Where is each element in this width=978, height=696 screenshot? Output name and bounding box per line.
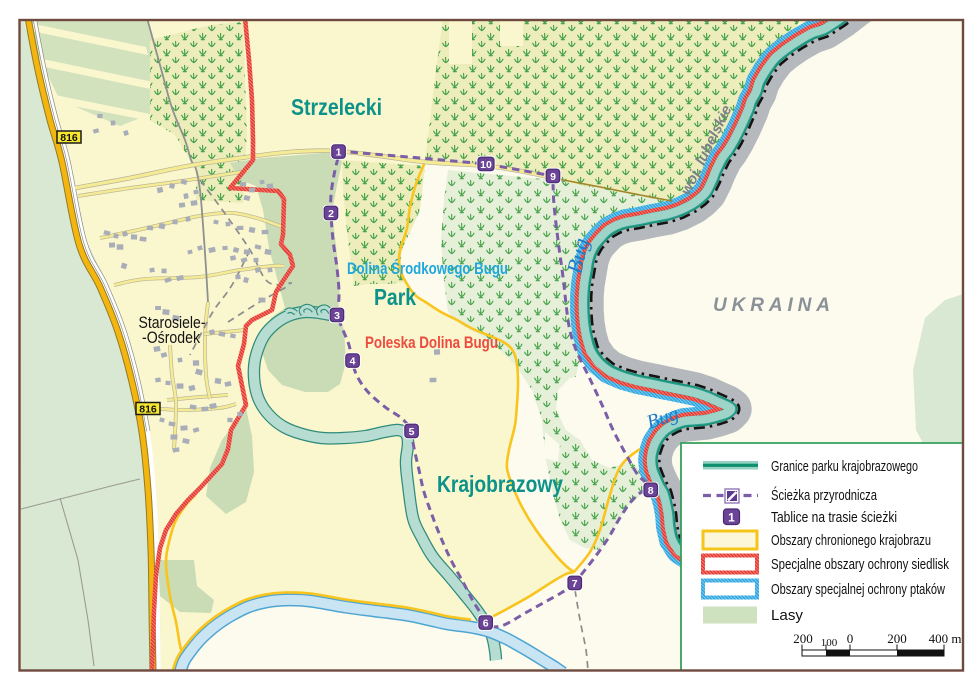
svg-text:816: 816 <box>139 403 157 415</box>
svg-text:Lasy: Lasy <box>771 607 804 624</box>
svg-text:Ścieżka przyrodnicza: Ścieżka przyrodnicza <box>771 486 877 504</box>
svg-text:6: 6 <box>483 617 489 629</box>
svg-text:Obszary chronionego krajobrazu: Obszary chronionego krajobrazu <box>771 532 931 549</box>
svg-text:200: 200 <box>887 631 907 646</box>
svg-text:UKRAINA: UKRAINA <box>713 295 837 316</box>
svg-text:0: 0 <box>847 631 854 646</box>
svg-text:-Ośrodek: -Ośrodek <box>142 328 200 347</box>
svg-text:Dolina Środkowego Bugu: Dolina Środkowego Bugu <box>347 259 508 278</box>
svg-text:200: 200 <box>793 631 813 646</box>
svg-text:3: 3 <box>334 310 340 322</box>
svg-text:5: 5 <box>409 426 415 438</box>
svg-text:100: 100 <box>821 637 838 649</box>
svg-text:10: 10 <box>480 159 492 171</box>
svg-text:816: 816 <box>60 132 78 144</box>
svg-text:Specjalne obszary ochrony sied: Specjalne obszary ochrony siedlisk <box>771 556 949 573</box>
svg-text:7: 7 <box>572 578 578 590</box>
svg-text:Tablice na trasie ścieżki: Tablice na trasie ścieżki <box>771 509 897 526</box>
svg-text:Poleska Dolina Bugu: Poleska Dolina Bugu <box>365 333 498 352</box>
svg-text:9: 9 <box>550 171 556 183</box>
svg-text:Granice parku krajobrazowego: Granice parku krajobrazowego <box>771 458 918 475</box>
svg-text:Krajobrazowy: Krajobrazowy <box>437 471 563 497</box>
svg-text:8: 8 <box>648 485 654 497</box>
svg-text:2: 2 <box>328 208 334 220</box>
svg-text:1: 1 <box>728 510 735 524</box>
svg-text:Obszary specjalnej ochrony pta: Obszary specjalnej ochrony ptaków <box>771 581 945 598</box>
svg-text:400 m: 400 m <box>929 631 962 646</box>
svg-text:1: 1 <box>336 146 342 158</box>
svg-text:Strzelecki: Strzelecki <box>291 94 382 120</box>
svg-text:Park: Park <box>374 284 416 310</box>
svg-text:4: 4 <box>350 355 356 367</box>
